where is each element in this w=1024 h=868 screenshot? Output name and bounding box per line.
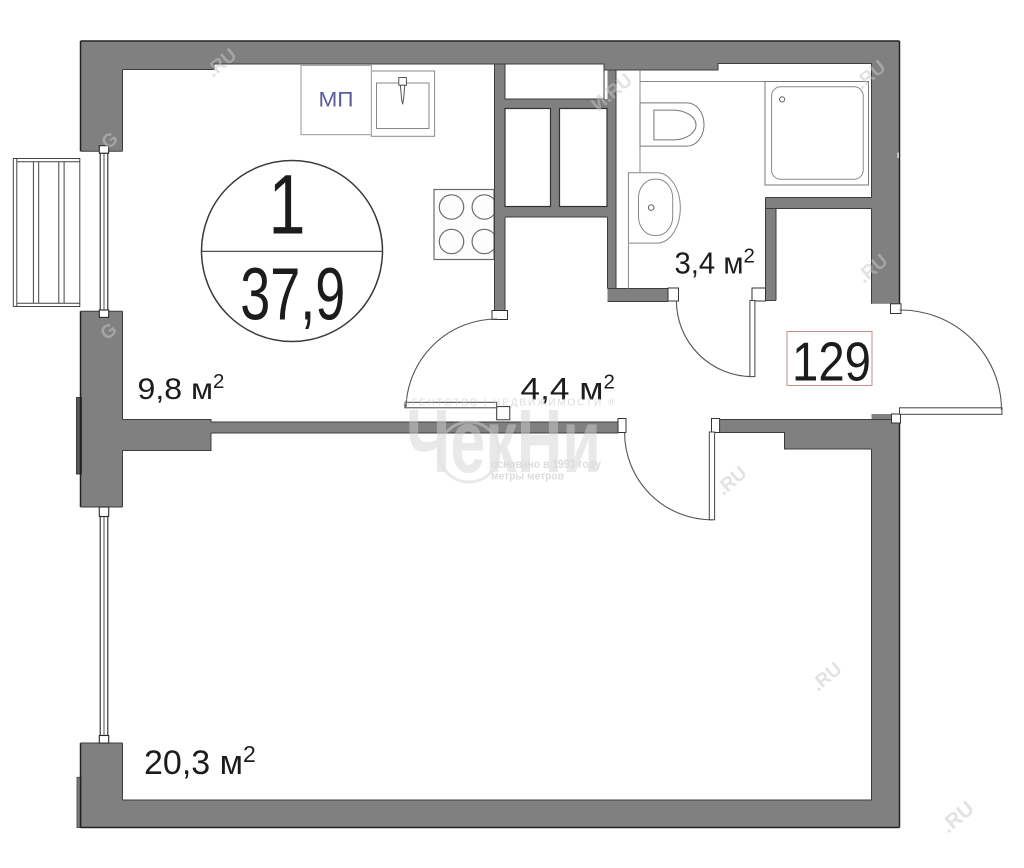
svg-text:основано в 1993 году: основано в 1993 году <box>491 457 601 471</box>
svg-text:3,4 м2: 3,4 м2 <box>675 245 755 281</box>
svg-text:129: 129 <box>792 331 871 393</box>
svg-text:37,9: 37,9 <box>240 252 345 335</box>
svg-text:1: 1 <box>269 158 306 252</box>
svg-text:20,3 м2: 20,3 м2 <box>144 741 256 782</box>
svg-text:МП: МП <box>319 89 354 112</box>
svg-text:9,8 м2: 9,8 м2 <box>138 370 225 406</box>
svg-text:метры метров: метры метров <box>491 471 564 483</box>
